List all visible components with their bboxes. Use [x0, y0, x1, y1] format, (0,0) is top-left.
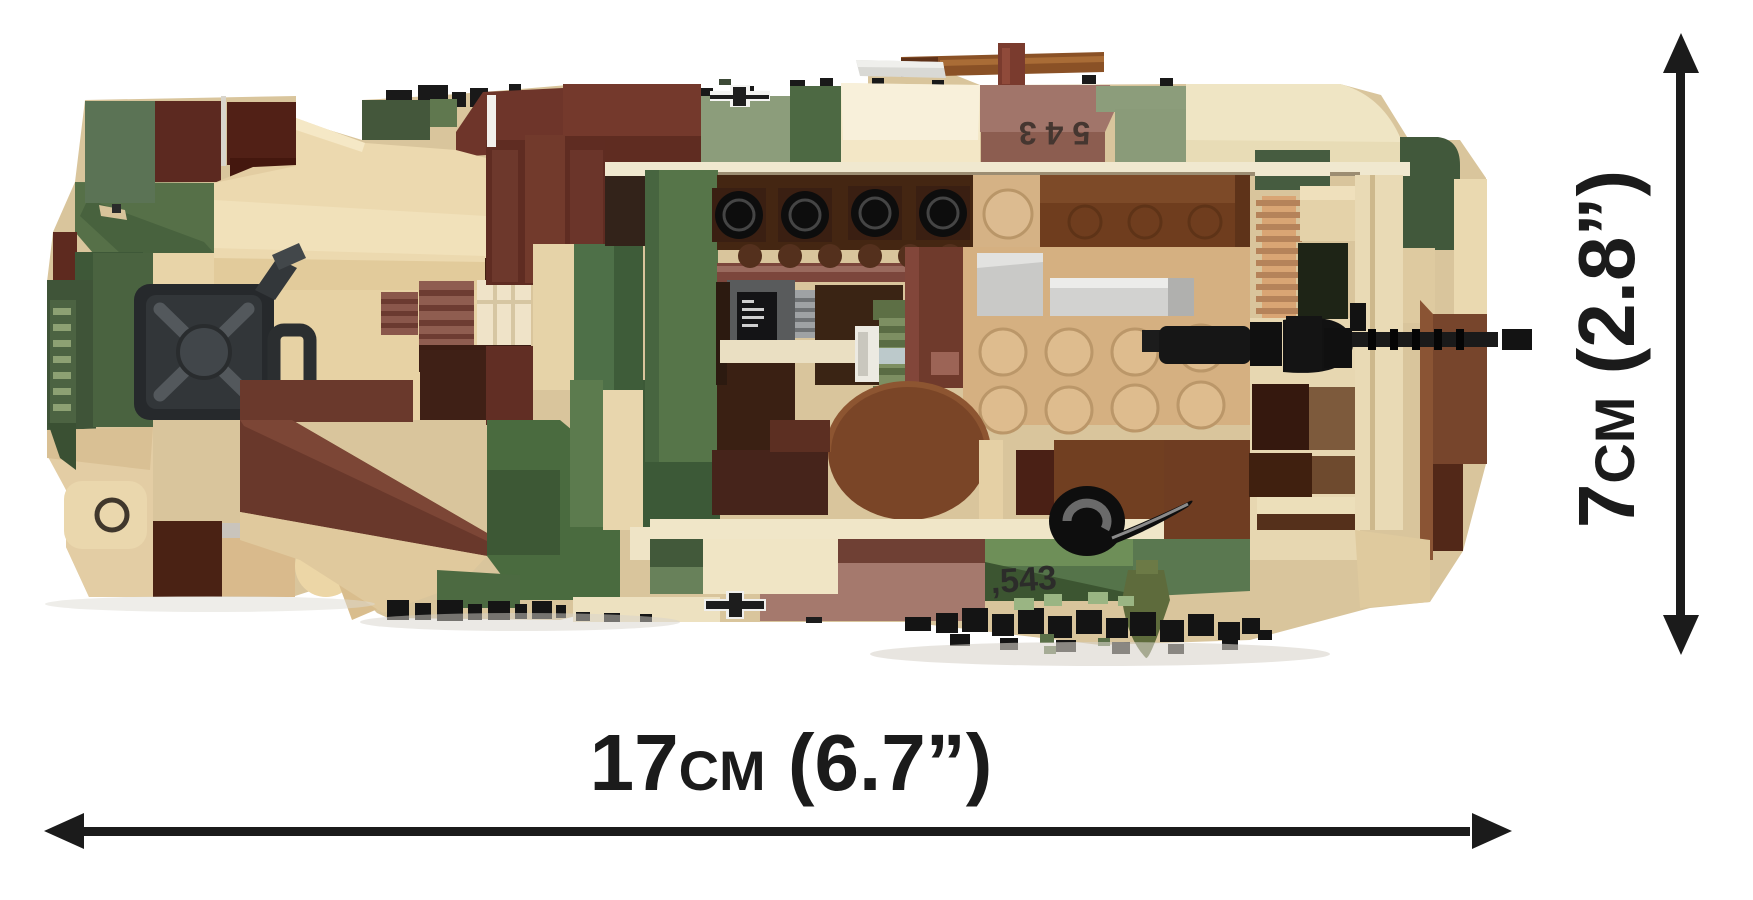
svg-text:543: 543 — [1010, 115, 1090, 151]
svg-text:17CM (6.7”): 17CM (6.7”) — [590, 718, 993, 807]
